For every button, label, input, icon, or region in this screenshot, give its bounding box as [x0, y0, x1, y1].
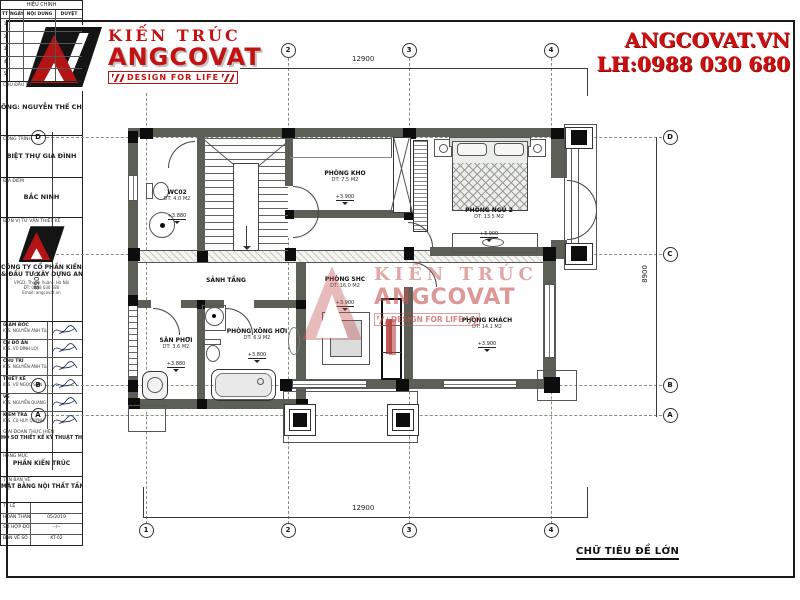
room-name: PHÒNG KHO [285, 170, 405, 177]
revision-cell [10, 57, 24, 69]
signer-name: KTS. NGUYỄN ANH TUẤN [3, 364, 45, 369]
grid-bubble: 3 [402, 43, 417, 58]
level-mark [174, 221, 180, 227]
revision-cell [24, 69, 56, 81]
sheet-info-label: BẢN VẼ SỐ [1, 535, 31, 545]
window [443, 380, 517, 388]
room-label: PHÒNG SHCDT: 16.0 M2+3.900 [285, 276, 405, 314]
room-label: PHÒNG KHODT: 7.5 M2+3.900 [285, 170, 405, 208]
dimension-line [656, 137, 657, 417]
brand-tagline: DESIGN FOR LIFE [127, 73, 219, 82]
grid-bubble: A [663, 408, 678, 423]
revision-cell: 5 [1, 69, 10, 81]
level-mark [486, 239, 492, 245]
location-value: BẮC NINH [1, 193, 82, 201]
signer-info: CHỦ TRÌKTS. NGUYỄN ANH TUẤN [1, 358, 48, 375]
signer-info: KIỂM TRAKTS. CÙ HUY QUỲNH [1, 412, 48, 429]
column [128, 131, 138, 143]
signer-name: KTS. VŨ NGỌC SƠN [3, 382, 45, 387]
location-section: ĐỊA ĐIỂM BẮC NINH [1, 178, 82, 218]
room-level: +3.900 [480, 231, 499, 238]
dimension-line [587, 487, 588, 517]
company-email: Email: angcovat.vn [1, 290, 82, 295]
pillow [457, 143, 487, 156]
dimension-top: 12900 [350, 55, 376, 63]
consultant-label: ĐƠN VỊ TƯ VẤN THIẾT KẾ [1, 218, 82, 225]
project-label: CÔNG TRÌNH [1, 136, 82, 143]
revision-cell [56, 69, 82, 81]
column [404, 247, 414, 260]
room-level: +3.900 [336, 300, 355, 307]
washer-drum [147, 377, 163, 393]
revision-row: TTNGÀYNỘI DUNGDUYỆT [1, 10, 82, 19]
revision-cell: 4 [1, 57, 10, 69]
pillow [494, 143, 524, 156]
room-label: PHÒNG NGỦ 2DT: 13.5 M2+3.900 [429, 207, 549, 245]
revision-cell [24, 57, 56, 69]
revision-cell [10, 44, 24, 56]
signer-name: KTS. NGUYỄN QUANG THÁI [3, 400, 45, 405]
grid-bubble: 3 [402, 523, 417, 538]
nightstand-lamp [533, 144, 542, 153]
room-label: SẢNH TẦNG [166, 277, 286, 284]
revision-cell [56, 32, 82, 44]
project-value: BIỆT THỰ GIA ĐÌNH [1, 152, 82, 160]
sheet-info-row: BẢN VẼ SỐKT-02 [1, 535, 82, 545]
stage-value: HỒ SƠ THIẾT KẾ KỸ THUẬT THI CÔNG [1, 436, 82, 441]
door-arc [293, 212, 319, 238]
door-arc [153, 308, 180, 335]
hatch-decoration [222, 74, 234, 82]
door-arc [412, 262, 437, 287]
balcony-column [571, 246, 587, 261]
room-label: WC02DT: 4.0 M2+3.880 [117, 189, 237, 227]
grid-bubble: 4 [544, 43, 559, 58]
signer-info: THIẾT KẾKTS. VŨ NGỌC SƠN [1, 376, 48, 393]
door-arc [168, 141, 195, 168]
signers-section: GIÁM ĐỐCKTS. NGUYỄN ANH TUẤNCN ĐỒ ÁNKTS.… [1, 322, 82, 430]
revision-row: 1 [1, 19, 82, 32]
outline [288, 138, 392, 158]
investor-value: ÔNG: NGUYỄN THẾ CHUNG [1, 103, 82, 111]
room-label: PHÒNG XÔNG HƠIDT: 6.9 M2+3.800 [197, 328, 317, 366]
bathtub-drain [257, 378, 264, 385]
room-name: PHÒNG KHÁCH [427, 317, 547, 324]
signer-info: VẼKTS. NGUYỄN QUANG THÁI [1, 394, 48, 411]
sheet-info-value: --/-- [31, 524, 82, 534]
signer-name: KTS. CÙ HUY QUỲNH [3, 418, 45, 423]
porch-column [396, 413, 410, 427]
signature [48, 322, 82, 339]
bathtub-inner [215, 373, 272, 397]
hatch-decoration [112, 74, 124, 82]
room-level: +3.900 [336, 194, 355, 201]
revision-cell: 3 [1, 44, 10, 56]
revision-cell [24, 32, 56, 44]
consultant-section: ĐƠN VỊ TƯ VẤN THIẾT KẾ CÔNG TY CỔ PHẦN K… [1, 218, 82, 322]
door-opening [224, 300, 254, 308]
contact-info: ANGCOVAT.VN LH:0988 030 680 [597, 28, 790, 76]
room-name: WC02 [117, 189, 237, 196]
signer-info: GIÁM ĐỐCKTS. NGUYỄN ANH TUẤN [1, 322, 48, 339]
dimension-line [587, 68, 588, 96]
level-mark [342, 202, 348, 208]
revision-cell [56, 57, 82, 69]
tv [386, 319, 392, 354]
level-mark [173, 369, 179, 375]
column [543, 247, 556, 261]
grid-bubble: 4 [544, 523, 559, 538]
revision-cell [10, 19, 24, 31]
dimension-line [143, 487, 144, 517]
bed-blanket [452, 163, 528, 211]
brand-tagline-box: DESIGN FOR LIFE [108, 71, 238, 84]
nightstand-lamp [439, 144, 448, 153]
revision-cell: NỘI DUNG [24, 10, 56, 18]
level-mark [484, 349, 490, 355]
corner-column [544, 377, 560, 393]
consultant-logo [19, 226, 65, 262]
phone: LH:0988 030 680 [597, 52, 790, 76]
signature [48, 394, 82, 411]
sheet-info-row: SỐ HỢP ĐỒNG--/-- [1, 524, 82, 535]
project-section: CÔNG TRÌNH BIỆT THỰ GIA ĐÌNH [1, 136, 82, 179]
balcony-column [571, 130, 587, 145]
grid-bubble: 1 [139, 523, 154, 538]
sheet-name-section: TÊN BẢN VẼ MẶT BẰNG NỘI THẤT TẦNG 1 [1, 477, 82, 503]
revision-cell [24, 19, 56, 31]
column [197, 399, 207, 409]
sheet-info-label: SỐ HỢP ĐỒNG [1, 524, 31, 534]
revision-cell [56, 44, 82, 56]
revision-table: HIỆU CHỈNH TTNGÀYNỘI DUNGDUYỆT12345 [1, 1, 82, 82]
revision-row: 5 [1, 69, 82, 81]
revision-cell [10, 32, 24, 44]
revision-row: 3 [1, 44, 82, 57]
signer-row: CN ĐỒ ÁNKTS. VŨ ĐÌNH LỢI [1, 340, 82, 358]
grid-bubble: 2 [281, 523, 296, 538]
sheet-info-value [31, 503, 82, 513]
door-opening [151, 300, 181, 308]
location-label: ĐỊA ĐIỂM [1, 178, 82, 185]
column [128, 380, 138, 392]
signer-row: KIỂM TRAKTS. CÙ HUY QUỲNH [1, 412, 82, 430]
sheet-info-row: HOÀN THÀNH05/2019 [1, 514, 82, 525]
room-name: PHÒNG NGỦ 2 [429, 207, 549, 214]
revision-row: 2 [1, 32, 82, 45]
room-level: +3.800 [248, 352, 267, 359]
room-level: +3.880 [168, 213, 187, 220]
investor-label: CHỦ ĐẦU TƯ [1, 82, 82, 89]
revision-cell [24, 44, 56, 56]
room-name: PHÒNG SHC [285, 276, 405, 283]
column [140, 128, 153, 139]
brand-name: ANGCOVAT [108, 45, 262, 69]
signature [48, 376, 82, 393]
stage-section: GIAI ĐOẠN THỰC HIỆN HỒ SƠ THIẾT KẾ KỸ TH… [1, 429, 82, 453]
grid-bubble: C [663, 247, 678, 262]
signer-row: VẼKTS. NGUYỄN QUANG THÁI [1, 394, 82, 412]
revision-cell: DUYỆT [56, 10, 82, 18]
column [280, 379, 292, 391]
sink-drain [212, 314, 216, 318]
title-block: HIỆU CHỈNH TTNGÀYNỘI DUNGDUYỆT12345 CHỦ … [0, 0, 83, 546]
revision-cell: NGÀY [10, 10, 24, 18]
room-level: +3.900 [478, 341, 497, 348]
revision-cell: 1 [1, 19, 10, 31]
room-level: +3.880 [167, 361, 186, 368]
grid-bubble: D [663, 130, 678, 145]
stair-arrow-head [243, 246, 251, 254]
column [396, 379, 409, 391]
website: ANGCOVAT.VN [597, 28, 790, 52]
investor-section: CHỦ ĐẦU TƯ ÔNG: NGUYỄN THẾ CHUNG [1, 82, 82, 136]
outline [128, 405, 166, 432]
porch-column [293, 413, 307, 427]
grid-bubble: 2 [281, 43, 296, 58]
company-name-2: & ĐẦU TƯ XÂY DỰNG ANG [1, 271, 82, 278]
signer-row: THIẾT KẾKTS. VŨ NGỌC SƠN [1, 376, 82, 394]
signer-name: KTS. NGUYỄN ANH TUẤN [3, 328, 45, 333]
signer-name: KTS. VŨ ĐÌNH LỢI [3, 346, 45, 351]
wardrobe [413, 140, 428, 232]
revision-title: HIỆU CHỈNH [1, 1, 82, 10]
window [292, 380, 367, 388]
revision-cell [10, 69, 24, 81]
drawing-caption: CHỮ TIÊU ĐỀ LỚN [576, 546, 679, 560]
signature [48, 358, 82, 375]
grid-bubble: B [663, 378, 678, 393]
dimension-line [143, 517, 588, 518]
category-value: PHẦN KIẾN TRÚC [1, 460, 82, 467]
dimension-bottom: 12900 [350, 504, 376, 512]
shelf-line [290, 157, 392, 158]
room-name: SẢNH TẦNG [166, 277, 286, 284]
level-mark [342, 308, 348, 314]
stair-arrow-line [246, 226, 247, 247]
category-section: HẠNG MỤC PHẦN KIẾN TRÚC [1, 453, 82, 477]
room-name: PHÒNG XÔNG HƠI [197, 328, 317, 335]
outline [571, 142, 579, 254]
sheet-info-value: KT-02 [31, 535, 82, 545]
sheet-info-table: TỶ LỆHOÀN THÀNH05/2019SỐ HỢP ĐỒNG--/--BẢ… [1, 503, 82, 545]
revision-cell [56, 19, 82, 31]
wall [128, 128, 567, 137]
signature [48, 412, 82, 429]
signature [48, 340, 82, 357]
sheet-info-label: TỶ LỆ [1, 503, 31, 513]
signer-row: CHỦ TRÌKTS. NGUYỄN ANH TUẤN [1, 358, 82, 376]
sheet-info-value: 05/2019 [31, 514, 82, 524]
column [197, 251, 208, 262]
signer-row: GIÁM ĐỐCKTS. NGUYỄN ANH TUẤN [1, 322, 82, 340]
column [128, 295, 138, 306]
dimension-right: 8900 [641, 263, 649, 285]
column [128, 248, 140, 261]
revision-row: 4 [1, 57, 82, 70]
room-label: PHÒNG KHÁCHDT: 14.1 M2+3.900 [427, 317, 547, 355]
drawing-sheet: WC02DT: 4.0 M2+3.880PHÒNG KHODT: 7.5 M2+… [0, 0, 800, 600]
level-mark [254, 360, 260, 366]
sheet-value: MẶT BẰNG NỘI THẤT TẦNG 1 [1, 484, 82, 490]
sheet-info-row: TỶ LỆ [1, 503, 82, 514]
revision-cell: 2 [1, 32, 10, 44]
sheet-info-label: HOÀN THÀNH [1, 514, 31, 524]
signer-info: CN ĐỒ ÁNKTS. VŨ ĐÌNH LỢI [1, 340, 48, 357]
revision-cell: TT [1, 10, 10, 18]
rug [330, 320, 362, 357]
